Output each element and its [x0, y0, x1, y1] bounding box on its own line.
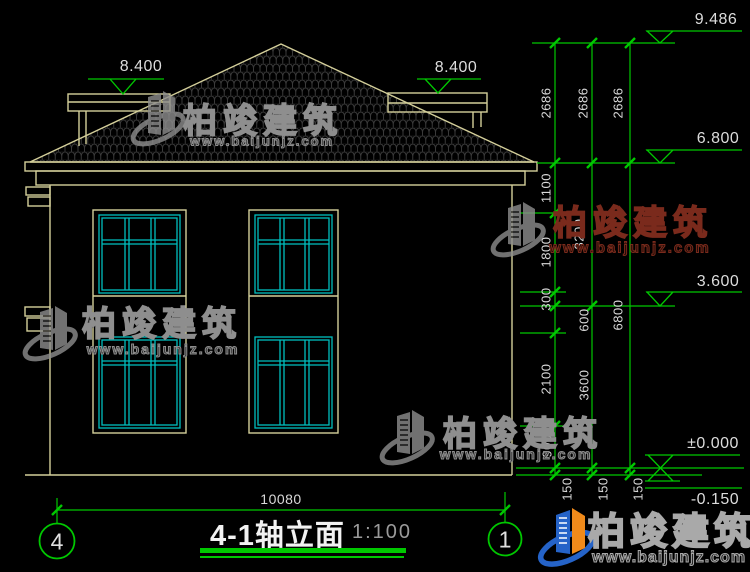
window-upper-right	[255, 215, 332, 293]
level-parapet-left: 8.400	[120, 58, 163, 76]
level-zero: ±0.000	[687, 435, 739, 453]
level-floor2-symbol	[646, 292, 742, 306]
elevation-drawing-canvas: 2686 2686 2686 1100 1800 300 600 2100 90…	[0, 0, 750, 572]
dim-roof-1: 2686	[539, 88, 554, 119]
axis-bubble-left-label: 4	[51, 529, 64, 556]
watermark-url-right: www.baijunjz.com	[549, 240, 710, 257]
dim-width: 10080	[260, 491, 301, 507]
level-eave: 6.800	[697, 130, 740, 148]
dim-150-1: 150	[560, 477, 575, 500]
dim-600: 600	[577, 308, 592, 331]
watermark-icon-left	[21, 306, 79, 365]
brand-logo-name: 柏竣建筑	[588, 501, 750, 555]
dim-300: 300	[539, 287, 554, 310]
drawing-scale: 1:100	[352, 521, 412, 544]
level-parapet-right-symbol	[417, 79, 481, 93]
watermark-url-bottom: www.baijunjz.com	[440, 446, 593, 462]
dim-150-3: 150	[631, 477, 646, 500]
dim-roof-3: 2686	[611, 88, 626, 119]
watermark-url-top: www.baijunjz.com	[190, 134, 334, 149]
dim-6800: 6800	[611, 300, 626, 331]
level-floor2: 3.600	[697, 273, 740, 291]
watermark-brand-right: 柏竣建筑	[553, 196, 713, 245]
brand-logo-url: www.baijunjz.com	[592, 549, 746, 567]
watermark-url-left: www.baijunjz.com	[87, 341, 240, 357]
level-ridge: 9.486	[695, 11, 738, 29]
window-upper-left	[99, 215, 180, 293]
dim-1100: 1100	[539, 173, 554, 203]
eave-band-lower	[36, 171, 525, 185]
level-parapet-right: 8.400	[435, 59, 478, 77]
title-underline-thin	[200, 556, 404, 558]
level-ridge-symbol	[646, 31, 742, 43]
window-lower-right	[255, 337, 332, 428]
dim-2100: 2100	[539, 364, 554, 395]
watermark-icon-bottom	[378, 410, 436, 469]
axis-bubble-right-label: 1	[499, 527, 512, 554]
watermark-brand-left: 柏竣建筑	[82, 297, 242, 346]
eave-band-upper	[25, 162, 537, 171]
level-parapet-left-symbol	[88, 79, 164, 94]
dim-roof-2: 2686	[576, 88, 591, 119]
dim-3600: 3600	[577, 370, 592, 401]
title-underline-thick	[200, 548, 406, 553]
level-eave-symbol	[646, 150, 742, 163]
left-ledge-upper	[26, 187, 50, 206]
dim-150-2: 150	[596, 477, 611, 500]
